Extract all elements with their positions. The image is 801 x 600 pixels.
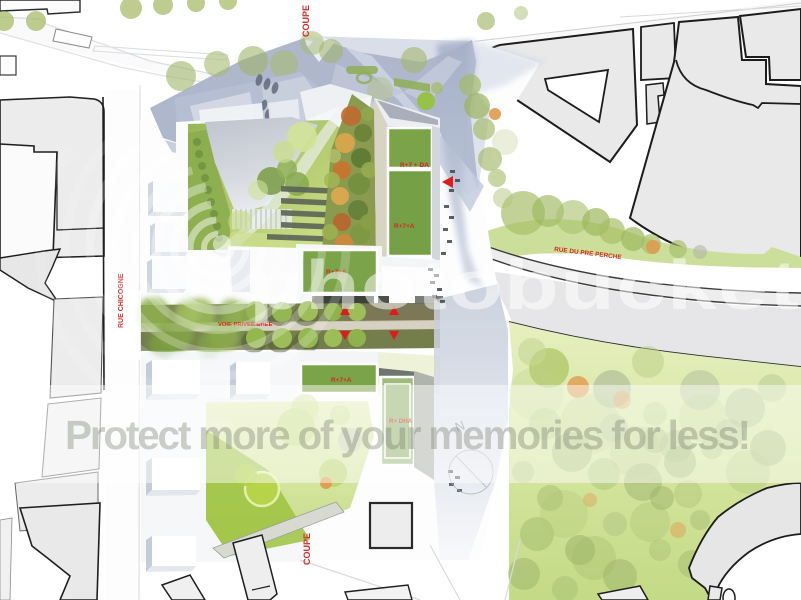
svg-text:R+7+A: R+7+A (394, 223, 415, 230)
svg-text:COUPE: COUPE (301, 5, 311, 37)
svg-text:R+7+A: R+7+A (331, 377, 352, 384)
svg-text:Protect more of your memories: Protect more of your memories for less! (65, 412, 749, 458)
svg-text:COUPE: COUPE (302, 533, 312, 565)
svg-text:photobucket: photobucket (249, 246, 800, 324)
svg-text:R+7 + DA: R+7 + DA (400, 162, 429, 169)
